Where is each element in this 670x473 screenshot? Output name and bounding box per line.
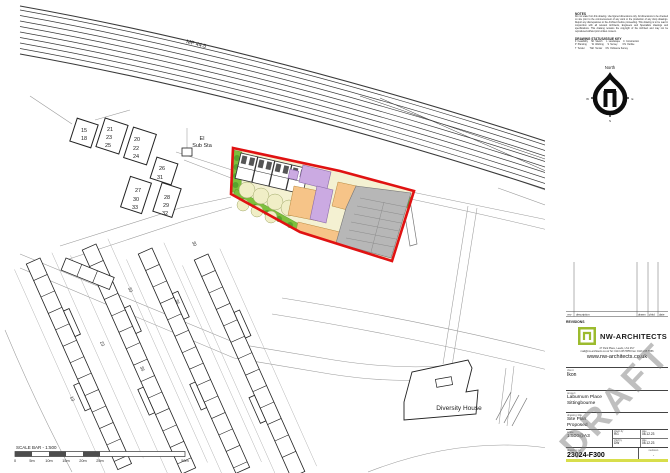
client-row: client Ikon [566, 367, 668, 390]
svg-text:25: 25 [105, 143, 111, 149]
svg-text:32: 32 [162, 211, 168, 217]
north-arrow-block: North W E S [582, 64, 638, 128]
svg-text:5m: 5m [29, 459, 34, 463]
svg-text:50m: 50m [181, 459, 188, 463]
svg-text:29: 29 [163, 203, 169, 209]
south-letter: S [609, 119, 611, 123]
client-value: Ikon [567, 372, 667, 378]
drawing-number-value: 23024-F300 [567, 452, 637, 459]
drawn-by-value: RG [614, 433, 639, 437]
svg-text:21: 21 [107, 127, 113, 133]
svg-text:20m: 20m [79, 459, 86, 463]
scale-bar: SCALE BAR - 1:500 0 5m 10m 15m 20m 25m 5… [14, 445, 189, 463]
drawing-title-line2: Proposed [567, 423, 667, 429]
svg-text:33: 33 [132, 205, 138, 211]
svg-text:0: 0 [14, 459, 16, 463]
svg-text:28: 28 [164, 195, 170, 201]
svg-text:10m: 10m [45, 459, 52, 463]
revisions-footer: REVISIONS [566, 320, 585, 324]
checked-by-value: DW [614, 442, 639, 446]
north-arrow: North W E S [582, 64, 638, 128]
drawing-number-row: drawing no. 23024-F300 revision - [566, 447, 668, 459]
revision-cell: revision - [638, 448, 668, 459]
firm-name: NW-ARCHITECTS [600, 332, 667, 341]
firm-branding: NW-ARCHITECTS [578, 327, 667, 345]
svg-text:27: 27 [135, 188, 141, 194]
drawn-col-header: drawn [638, 312, 646, 316]
development-site [231, 148, 414, 261]
firm-contact: 27 Park Place, Leeds, LS1 2SY mail@nw-ar… [566, 347, 668, 361]
svg-text:31: 31 [157, 175, 163, 181]
diversity-house-label: Diversity House [436, 405, 482, 412]
mp-label: MP 44.5 [186, 39, 207, 50]
notes-body: Do not scale from this drawing. Use figu… [575, 16, 668, 34]
scale-bar-label: SCALE BAR - 1:500 [16, 445, 57, 450]
scale-cell: scale 1:500@A3 [566, 430, 612, 447]
project-row: project Laburnum Place Sittingbourne [566, 390, 668, 412]
north-label: North [605, 65, 616, 70]
notes-block: NOTES Do not scale from this drawing. Us… [575, 12, 668, 51]
svg-text:30: 30 [133, 197, 139, 203]
firm-website: www.nw-architects.co.uk [566, 354, 668, 361]
site-plan-map: MP 44.5 El Sub Sta Diversity House 1518 … [0, 0, 545, 473]
drawing-number-cell: drawing no. 23024-F300 [566, 448, 638, 459]
date-col-header: date [659, 312, 665, 316]
svg-text:24: 24 [133, 154, 139, 160]
housing-blocks [70, 118, 192, 217]
project-location: Sittingbourne [567, 401, 667, 407]
svg-text:13: 13 [69, 395, 76, 402]
svg-text:26: 26 [159, 166, 165, 172]
revision-value: - [640, 452, 667, 457]
checked-date-value: 08.12.23 [642, 442, 667, 446]
drawing-title-row: drawing title Site Plan Proposed [566, 412, 668, 429]
accent-bar [566, 459, 668, 462]
terrace-rows [14, 239, 316, 473]
svg-text:15: 15 [81, 128, 87, 134]
svg-text:22: 22 [133, 146, 139, 152]
description-col-header: description [576, 312, 590, 316]
scale-row: scale 1:500@A3 drawn byRG date08.12.23 c… [566, 429, 668, 447]
el-sub-sta-line2: Sub Sta [192, 143, 213, 149]
substation-building [182, 148, 192, 156]
revision-table: rev description drawn chkd date REVISION… [566, 258, 668, 328]
svg-text:25m: 25m [96, 459, 103, 463]
status-key-row: T Tender T&F Tender OS Ordnance Survey [575, 48, 668, 51]
east-letter: E [631, 97, 633, 101]
drawn-checked-grid: drawn byRG date08.12.23 chkd byDW date08… [612, 430, 668, 447]
svg-text:33: 33 [127, 286, 134, 293]
svg-text:20: 20 [134, 137, 140, 143]
drawn-date-value: 08.12.23 [642, 433, 667, 437]
chkd-col-header: chkd [649, 312, 655, 316]
rev-col-header: rev [568, 312, 572, 316]
svg-text:15m: 15m [62, 459, 69, 463]
svg-text:23: 23 [99, 340, 106, 347]
title-block: client Ikon project Laburnum Place Sitti… [566, 367, 668, 459]
scale-value: 1:500@A3 [567, 434, 611, 440]
svg-text:30: 30 [191, 240, 198, 247]
svg-text:23: 23 [106, 135, 112, 141]
svg-text:18: 18 [81, 136, 87, 142]
nw-architects-logo-icon [578, 327, 596, 345]
firm-phone: mail@nw-architects.co.uk Tel: 0113 245 5… [566, 350, 668, 353]
drawing-sheet: MP 44.5 El Sub Sta Diversity House 1518 … [0, 0, 670, 473]
el-sub-sta-line1: El [200, 136, 205, 142]
west-letter: W [586, 97, 589, 101]
